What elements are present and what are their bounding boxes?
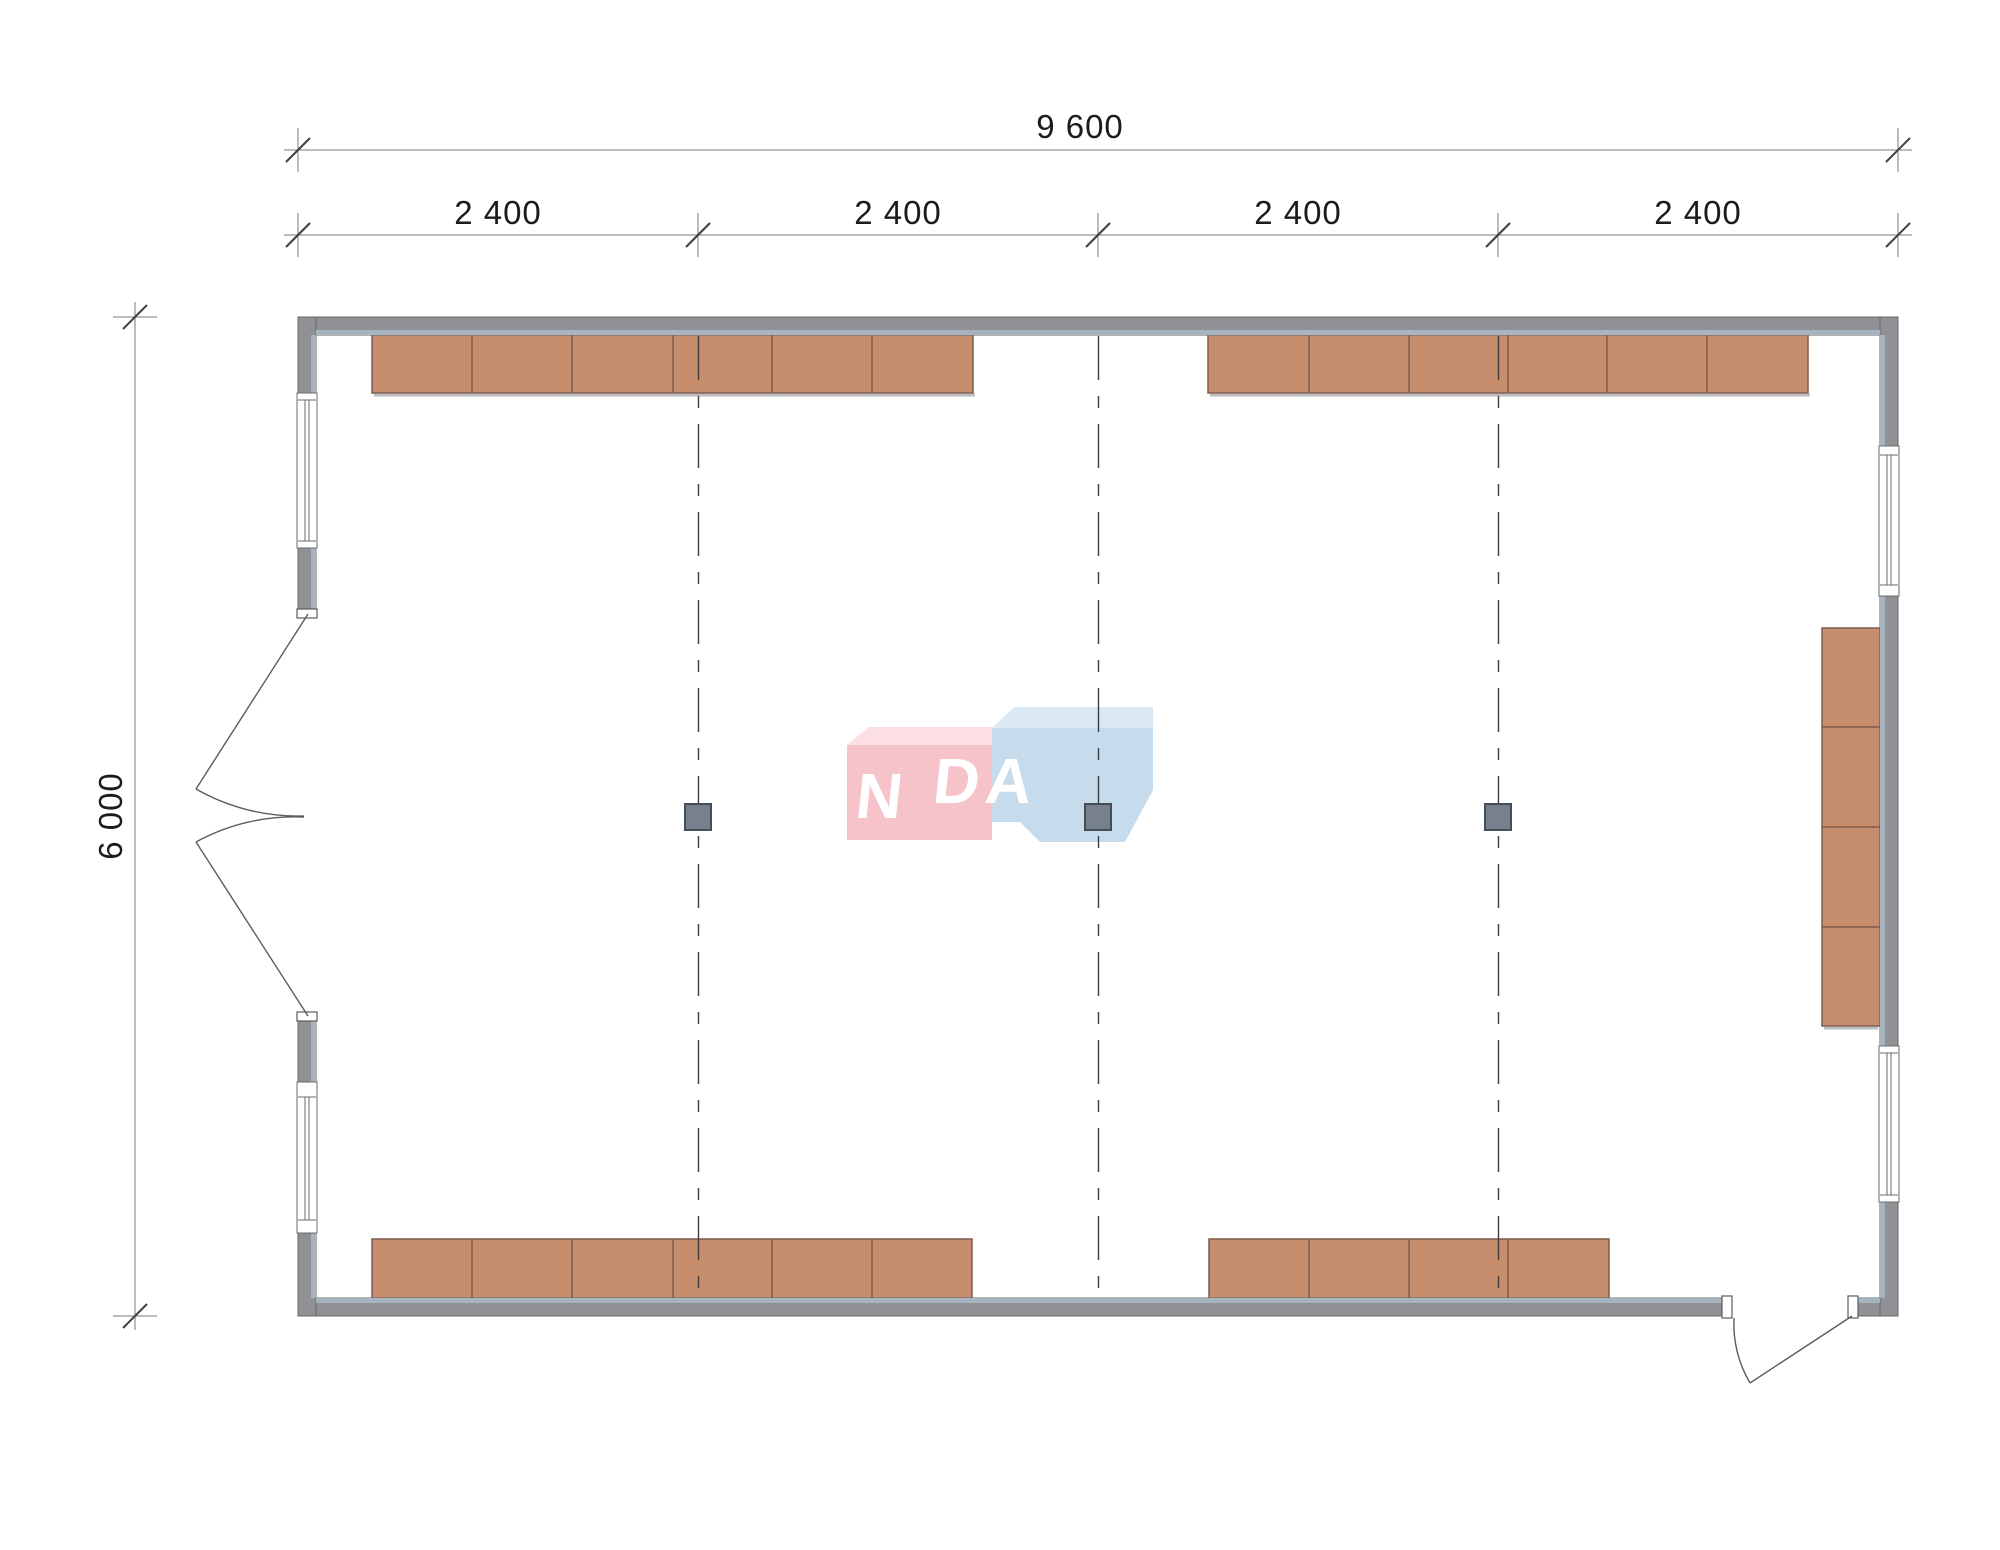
dimension-total-height: 6 000 <box>92 302 157 1330</box>
window-opening <box>297 393 317 548</box>
door-jamb-left <box>1722 1296 1732 1318</box>
window-left-lower <box>297 1082 317 1233</box>
top-wall-liner <box>316 330 1880 335</box>
logo-text-da: DA <box>930 745 1042 817</box>
floor-plan-page: VAN DA <box>0 0 2000 1550</box>
door-leaf-top <box>196 614 308 789</box>
door-swing-top <box>196 789 304 816</box>
dimension-total-width: 9 600 <box>284 108 1912 172</box>
cabinet-block <box>372 1239 972 1299</box>
cabinet-run-bottom-left <box>372 1239 972 1299</box>
window-right-lower <box>1879 1046 1899 1202</box>
dimension-label-bay-2: 2 400 <box>854 194 942 231</box>
window-opening <box>297 1082 317 1233</box>
door-opening <box>296 618 318 1012</box>
floor-plan-canvas: VAN DA <box>0 0 2000 1550</box>
door-swing-bottom <box>196 817 304 842</box>
dimension-label-bay-4: 2 400 <box>1654 194 1742 231</box>
logo-pink-top-face <box>847 727 992 745</box>
dimension-label-total-height: 6 000 <box>92 772 129 860</box>
window-right-upper <box>1879 446 1899 596</box>
column-1 <box>685 804 711 830</box>
cabinet-run-bottom-right <box>1209 1239 1609 1299</box>
logo-blue-top-face <box>992 707 1153 728</box>
dimension-label-bay-3: 2 400 <box>1254 194 1342 231</box>
column-3 <box>1485 804 1511 830</box>
dimension-label-total-width: 9 600 <box>1036 108 1124 145</box>
cabinet-run-top-left <box>372 333 975 395</box>
cabinet-run-top-right <box>1208 333 1810 395</box>
double-door-left <box>196 609 318 1021</box>
column-2 <box>1085 804 1111 830</box>
door-leaf <box>1750 1316 1852 1383</box>
window-left-upper <box>297 393 317 548</box>
single-door-bottom-right <box>1722 1296 1858 1383</box>
door-jamb-right <box>1848 1296 1858 1318</box>
dimension-bays: 2 400 2 400 2 400 2 400 <box>284 194 1912 257</box>
dimension-label-bay-1: 2 400 <box>454 194 542 231</box>
door-opening <box>1732 1297 1848 1317</box>
door-leaf-bottom <box>196 842 308 1016</box>
logo-text-van: VAN <box>756 760 912 832</box>
bottom-wall-liner <box>316 1298 1880 1303</box>
cabinet-run-right-wall <box>1822 628 1880 1028</box>
door-swing <box>1734 1318 1750 1383</box>
window-opening <box>1879 446 1899 596</box>
window-opening <box>1879 1046 1899 1202</box>
